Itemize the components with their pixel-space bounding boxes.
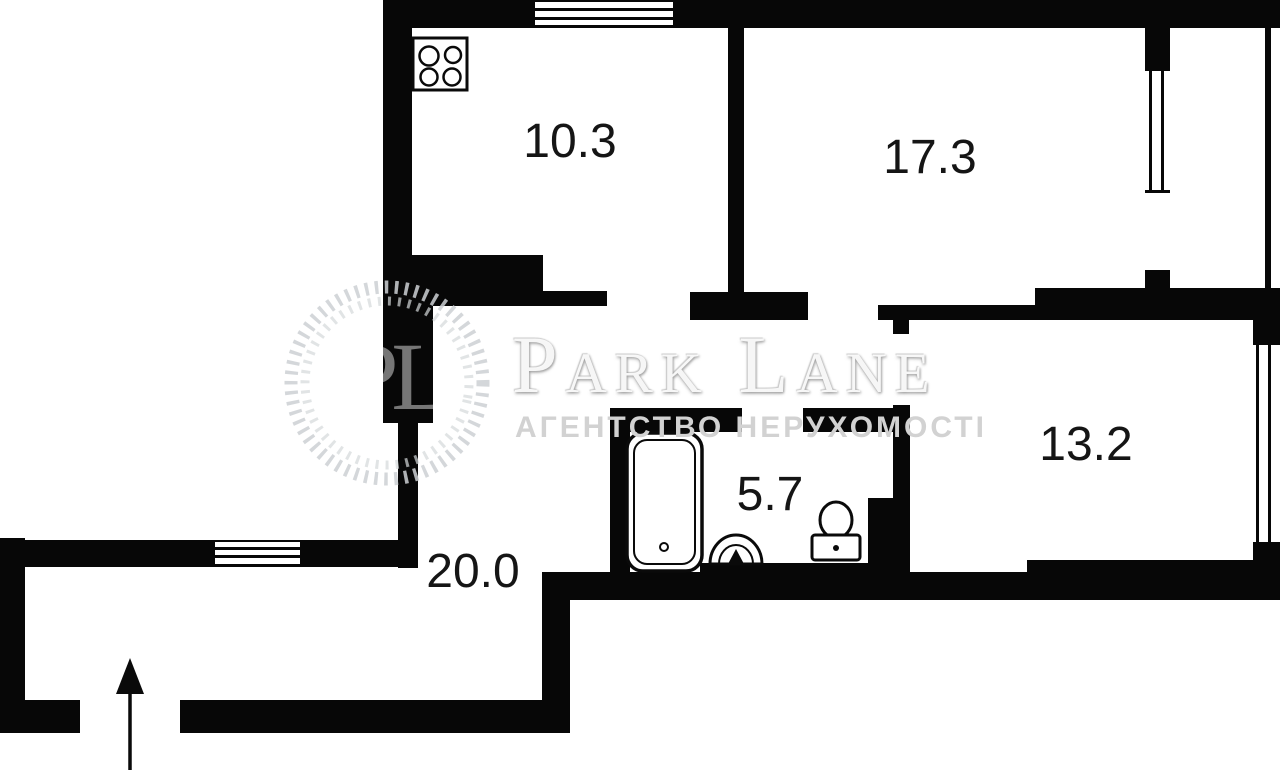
window-icon (535, 17, 673, 20)
room-label-bedroom: 13.2 (1001, 417, 1171, 473)
wall (868, 498, 910, 600)
window-icon (215, 564, 300, 567)
wall (180, 700, 542, 733)
window-icon (535, 0, 673, 2)
wall (383, 290, 433, 423)
window-icon (1268, 345, 1271, 542)
window-icon (215, 547, 300, 550)
window-icon (535, 25, 673, 28)
wall (878, 305, 1280, 320)
room-label-living-room: 17.3 (845, 130, 1015, 186)
wall (412, 291, 607, 306)
wall (803, 408, 897, 432)
wall (0, 540, 215, 567)
window-icon (535, 8, 673, 11)
window-icon (1145, 68, 1170, 71)
wall (412, 255, 543, 291)
sink-icon (710, 535, 762, 564)
walls (0, 0, 1280, 733)
burner (445, 47, 461, 63)
window-icon (1256, 345, 1259, 542)
wall (1253, 303, 1280, 345)
bathtub-drain (660, 543, 668, 551)
toilet-button (833, 545, 839, 551)
burner (420, 47, 439, 66)
stove-icon (413, 38, 467, 90)
window-icon (215, 555, 300, 558)
wall (1145, 270, 1170, 292)
window-icon (1145, 190, 1170, 193)
window-icon (1161, 70, 1164, 190)
burner (421, 69, 438, 86)
entrance-arrow (116, 658, 144, 770)
wall (383, 0, 412, 292)
room-label-bathroom: 5.7 (685, 467, 855, 523)
wall (542, 572, 1280, 600)
wall (0, 538, 25, 733)
arrow-head (116, 658, 144, 694)
window-icon (1149, 70, 1152, 190)
window-icon (215, 540, 300, 542)
room-label-hallway: 20.0 (388, 544, 558, 600)
burner (444, 69, 461, 86)
wall (1145, 28, 1170, 70)
wall (690, 292, 808, 320)
wall (728, 28, 744, 292)
room-label-kitchen: 10.3 (485, 114, 655, 170)
wall (893, 320, 909, 334)
wall (1265, 28, 1271, 290)
wall (673, 0, 1280, 28)
floor-plan: PL Park Lane АГЕНТСТВО НЕРУХОМОСТІ 10.3 … (0, 0, 1280, 770)
